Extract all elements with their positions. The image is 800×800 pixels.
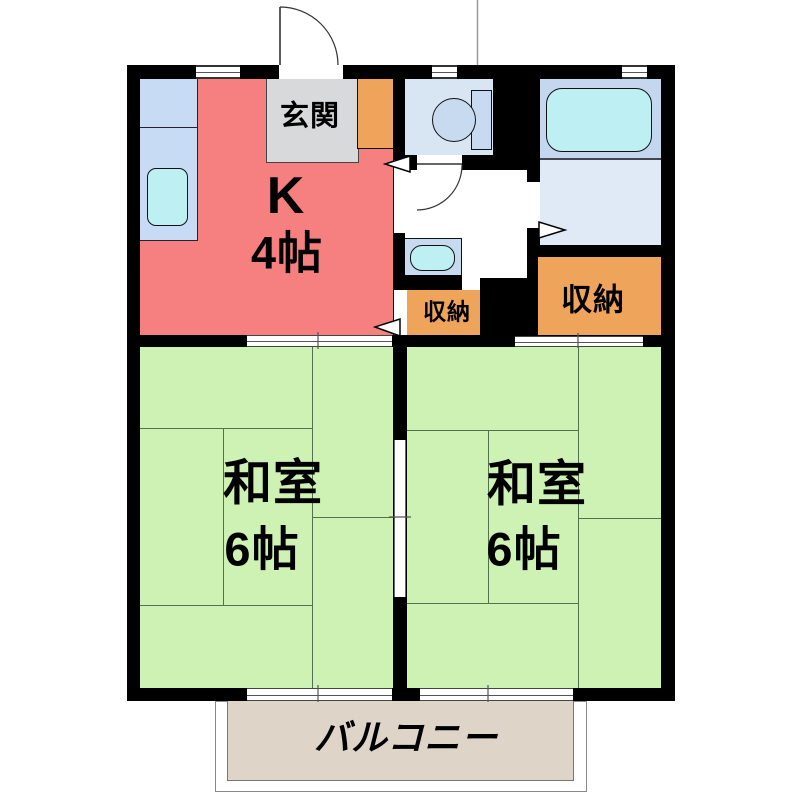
arrow-kitchen-hall (385, 156, 410, 172)
toilet-door-arc (417, 165, 462, 210)
arrow-kitchen-room (375, 319, 400, 336)
arrow-bathroom (539, 222, 565, 238)
floor-plan: 玄関 K 4帖 収納 収納 和室 6帖 和室 6帖 バルコニー (0, 0, 800, 800)
entrance-door-arc (280, 7, 338, 65)
plan-symbols-overlay (0, 0, 800, 800)
